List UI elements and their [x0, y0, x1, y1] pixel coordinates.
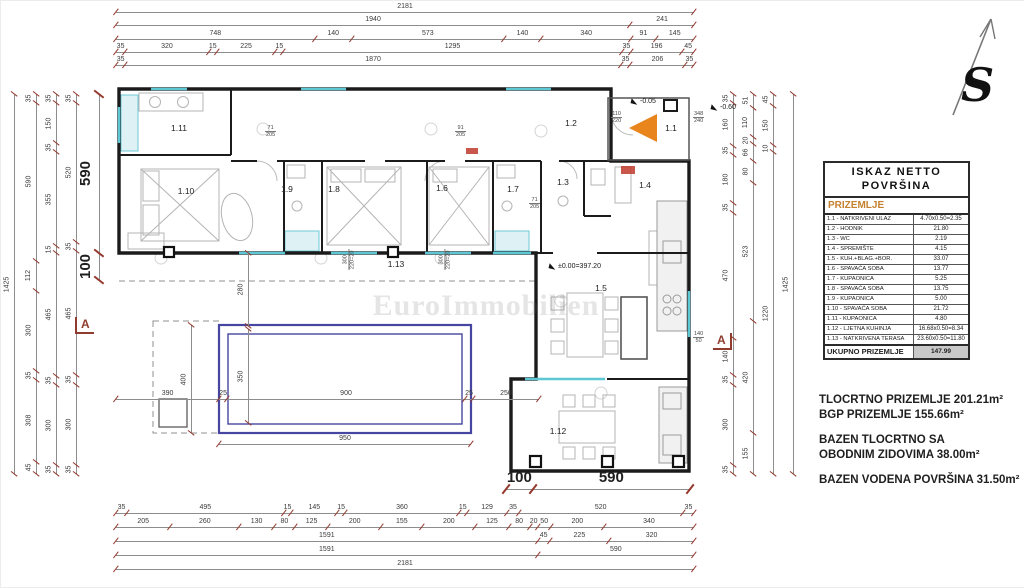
- table-row: 1.2 - HODNIK21.80: [824, 224, 969, 234]
- opening-tag: 14050: [693, 331, 704, 345]
- north-arrow-icon: S: [943, 9, 1023, 127]
- room-label-1-9: 1.9: [281, 184, 293, 194]
- row-label: 1.4 - SPREMIŠTE: [824, 244, 914, 254]
- room-label-1-8: 1.8: [328, 184, 340, 194]
- level-mark-floor: ±0.00=397.20: [549, 263, 601, 270]
- level-mark-entry: -0.05: [631, 98, 656, 105]
- tag-bottom: 220=20: [445, 250, 452, 271]
- area-summary: TLOCRTNO PRIZEMLJE 201.21m²BGP PRIZEMLJE…: [819, 393, 1024, 498]
- tag-bottom: 220=20: [349, 250, 356, 271]
- area-table-title-line1: ISKAZ NETTO: [825, 166, 968, 180]
- row-value: 5.00: [914, 294, 970, 304]
- summary-line: OBODNIM ZIDOVIMA 38.00m²: [819, 449, 980, 461]
- table-row: 1.12 - LJETNA KUHINJA16.68x0.50=8.34: [824, 324, 969, 334]
- summary-line: BAZEN VODENA POVRŠINA 31.50m²: [819, 474, 1019, 486]
- table-row: 1.3 - WC2.19: [824, 234, 969, 244]
- row-label: 1.2 - HODNIK: [824, 224, 914, 234]
- row-value: 16.68x0.50=8.34: [914, 324, 970, 334]
- total-label: UKUPNO PRIZEMLJE: [824, 345, 914, 359]
- summary-line: TLOCRTNO PRIZEMLJE 201.21m²: [819, 394, 1003, 406]
- row-value: 4.15: [914, 244, 970, 254]
- watermark: EuroImmobilien: [301, 289, 671, 323]
- level-entry-value: -0.05: [640, 98, 656, 105]
- opening-tag: 300220=20: [342, 250, 356, 271]
- row-label: 1.1 - NATKRIVENI ULAZ: [824, 214, 914, 225]
- floor-plan-sheet: EuroImmobilien 1.1 1.2 1.3 1.4 1.5 1.6 1…: [0, 0, 1024, 588]
- row-label: 1.9 - KUPAONICA: [824, 294, 914, 304]
- area-table-subtitle: PRIZEMLJE: [824, 197, 969, 214]
- fixture-circles: [155, 123, 607, 399]
- table-row: 1.9 - KUPAONICA5.00: [824, 294, 969, 304]
- tag-top: 348: [693, 111, 704, 117]
- row-value: 2.19: [914, 234, 970, 244]
- table-row: 1.11 - KUPAONICA4.80: [824, 314, 969, 324]
- row-label: 1.8 - SPAVAĆA SOBA: [824, 284, 914, 294]
- row-value: 13.77: [914, 264, 970, 274]
- row-label: 1.13 - NATKRIVENA TERASA: [824, 334, 914, 345]
- table-row: 1.8 - SPAVAĆA SOBA13.75: [824, 284, 969, 294]
- table-row: 1.4 - SPREMIŠTE4.15: [824, 244, 969, 254]
- row-value: 21.80: [914, 224, 970, 234]
- summary-line: BGP PRIZEMLJE 155.66m²: [819, 409, 964, 421]
- kitchen-counters: [657, 201, 687, 463]
- summary-paragraph: BAZEN TLOCRTNO SAOBODNIM ZIDOVIMA 38.00m…: [819, 433, 1024, 463]
- row-label: 1.6 - SPAVAĆA SOBA: [824, 264, 914, 274]
- room-label-1-13: 1.13: [388, 259, 405, 269]
- table-row: 1.5 - KUH.+BLAG.+BOR.33.07: [824, 254, 969, 264]
- pool: [219, 325, 471, 433]
- room-label-1-5: 1.5: [595, 283, 607, 293]
- shower-boxes: [121, 95, 529, 251]
- tag-bottom: 205: [529, 203, 540, 210]
- north-label: S: [961, 58, 994, 112]
- tag-bottom: 205: [265, 131, 276, 138]
- summary-paragraph: BAZEN VODENA POVRŠINA 31.50m²: [819, 473, 1024, 488]
- table-total-row: UKUPNO PRIZEMLJE147.99: [824, 345, 969, 359]
- summary-paragraph: TLOCRTNO PRIZEMLJE 201.21m²BGP PRIZEMLJE…: [819, 393, 1024, 423]
- table-row: 1.1 - NATKRIVENI ULAZ4.70x0.50=2.35: [824, 214, 969, 225]
- porch-column: [664, 100, 677, 111]
- row-label: 1.11 - KUPAONICA: [824, 314, 914, 324]
- opening-tag: 71205: [529, 197, 540, 211]
- tag-bottom: 240: [693, 117, 704, 124]
- area-table-title-line2: POVRŠINA: [825, 180, 968, 194]
- section-marker-a-right: A: [713, 333, 732, 350]
- room-label-1-6: 1.6: [436, 183, 448, 193]
- tag-bottom: 205: [455, 131, 466, 138]
- area-table: ISKAZ NETTOPOVRŠINA PRIZEMLJE 1.1 - NATK…: [823, 161, 970, 360]
- opening-tag: 348240: [693, 111, 704, 125]
- row-label: 1.10 - SPAVAĆA SOBA: [824, 304, 914, 314]
- room-label-1-4: 1.4: [639, 180, 651, 190]
- opening-tag: 91205: [455, 125, 466, 139]
- row-label: 1.5 - KUH.+BLAG.+BOR.: [824, 254, 914, 264]
- row-value: 33.07: [914, 254, 970, 264]
- level-outside-value: -0.60: [720, 104, 736, 111]
- room-label-1-10: 1.10: [178, 186, 195, 196]
- area-table-title: ISKAZ NETTOPOVRŠINA: [824, 162, 969, 197]
- level-floor-value: ±0.00=397.20: [558, 263, 601, 270]
- entrance-arrow-icon: [629, 114, 657, 142]
- table-row: 1.10 - SPAVAĆA SOBA21.72: [824, 304, 969, 314]
- row-value: 4.80: [914, 314, 970, 324]
- row-value: 5.25: [914, 274, 970, 284]
- row-label: 1.12 - LJETNA KUHINJA: [824, 324, 914, 334]
- opening-tag: 71205: [265, 125, 276, 139]
- area-table-subtitle-text: PRIZEMLJE: [824, 197, 969, 214]
- room-label-1-2: 1.2: [565, 118, 577, 128]
- tag-bottom: 220: [611, 117, 622, 124]
- room-label-1-11: 1.11: [171, 123, 187, 133]
- tag-bottom: 50: [693, 337, 704, 344]
- row-label: 1.7 - KUPAONICA: [824, 274, 914, 284]
- tag-top: 140: [693, 331, 704, 337]
- room-label-1-3: 1.3: [557, 177, 569, 187]
- total-value: 147.99: [914, 345, 970, 359]
- tag-top: 110: [611, 111, 622, 117]
- table-row: 1.13 - NATKRIVENA TERASA23.60x0.50=11.80: [824, 334, 969, 345]
- row-value: 13.75: [914, 284, 970, 294]
- summary-line: BAZEN TLOCRTNO SA: [819, 434, 945, 446]
- table-row: 1.7 - KUPAONICA5.25: [824, 274, 969, 284]
- table-row: 1.6 - SPAVAĆA SOBA13.77: [824, 264, 969, 274]
- outdoor-shower-pad: [159, 399, 187, 427]
- opening-tag: 110220: [611, 111, 622, 125]
- row-label: 1.3 - WC: [824, 234, 914, 244]
- row-value: 23.60x0.50=11.80: [914, 334, 970, 345]
- furniture: [128, 93, 687, 459]
- room-label-1-7: 1.7: [507, 184, 519, 194]
- outer-walls: [119, 89, 689, 471]
- row-value: 21.72: [914, 304, 970, 314]
- opening-tag: 300220=20: [438, 250, 452, 271]
- level-mark-outside: -0.60: [711, 104, 736, 111]
- room-label-1-12: 1.12: [550, 426, 567, 436]
- row-value: 4.70x0.50=2.35: [914, 214, 970, 225]
- room-label-1-1: 1.1: [665, 123, 677, 133]
- section-marker-a-left: A: [75, 317, 94, 334]
